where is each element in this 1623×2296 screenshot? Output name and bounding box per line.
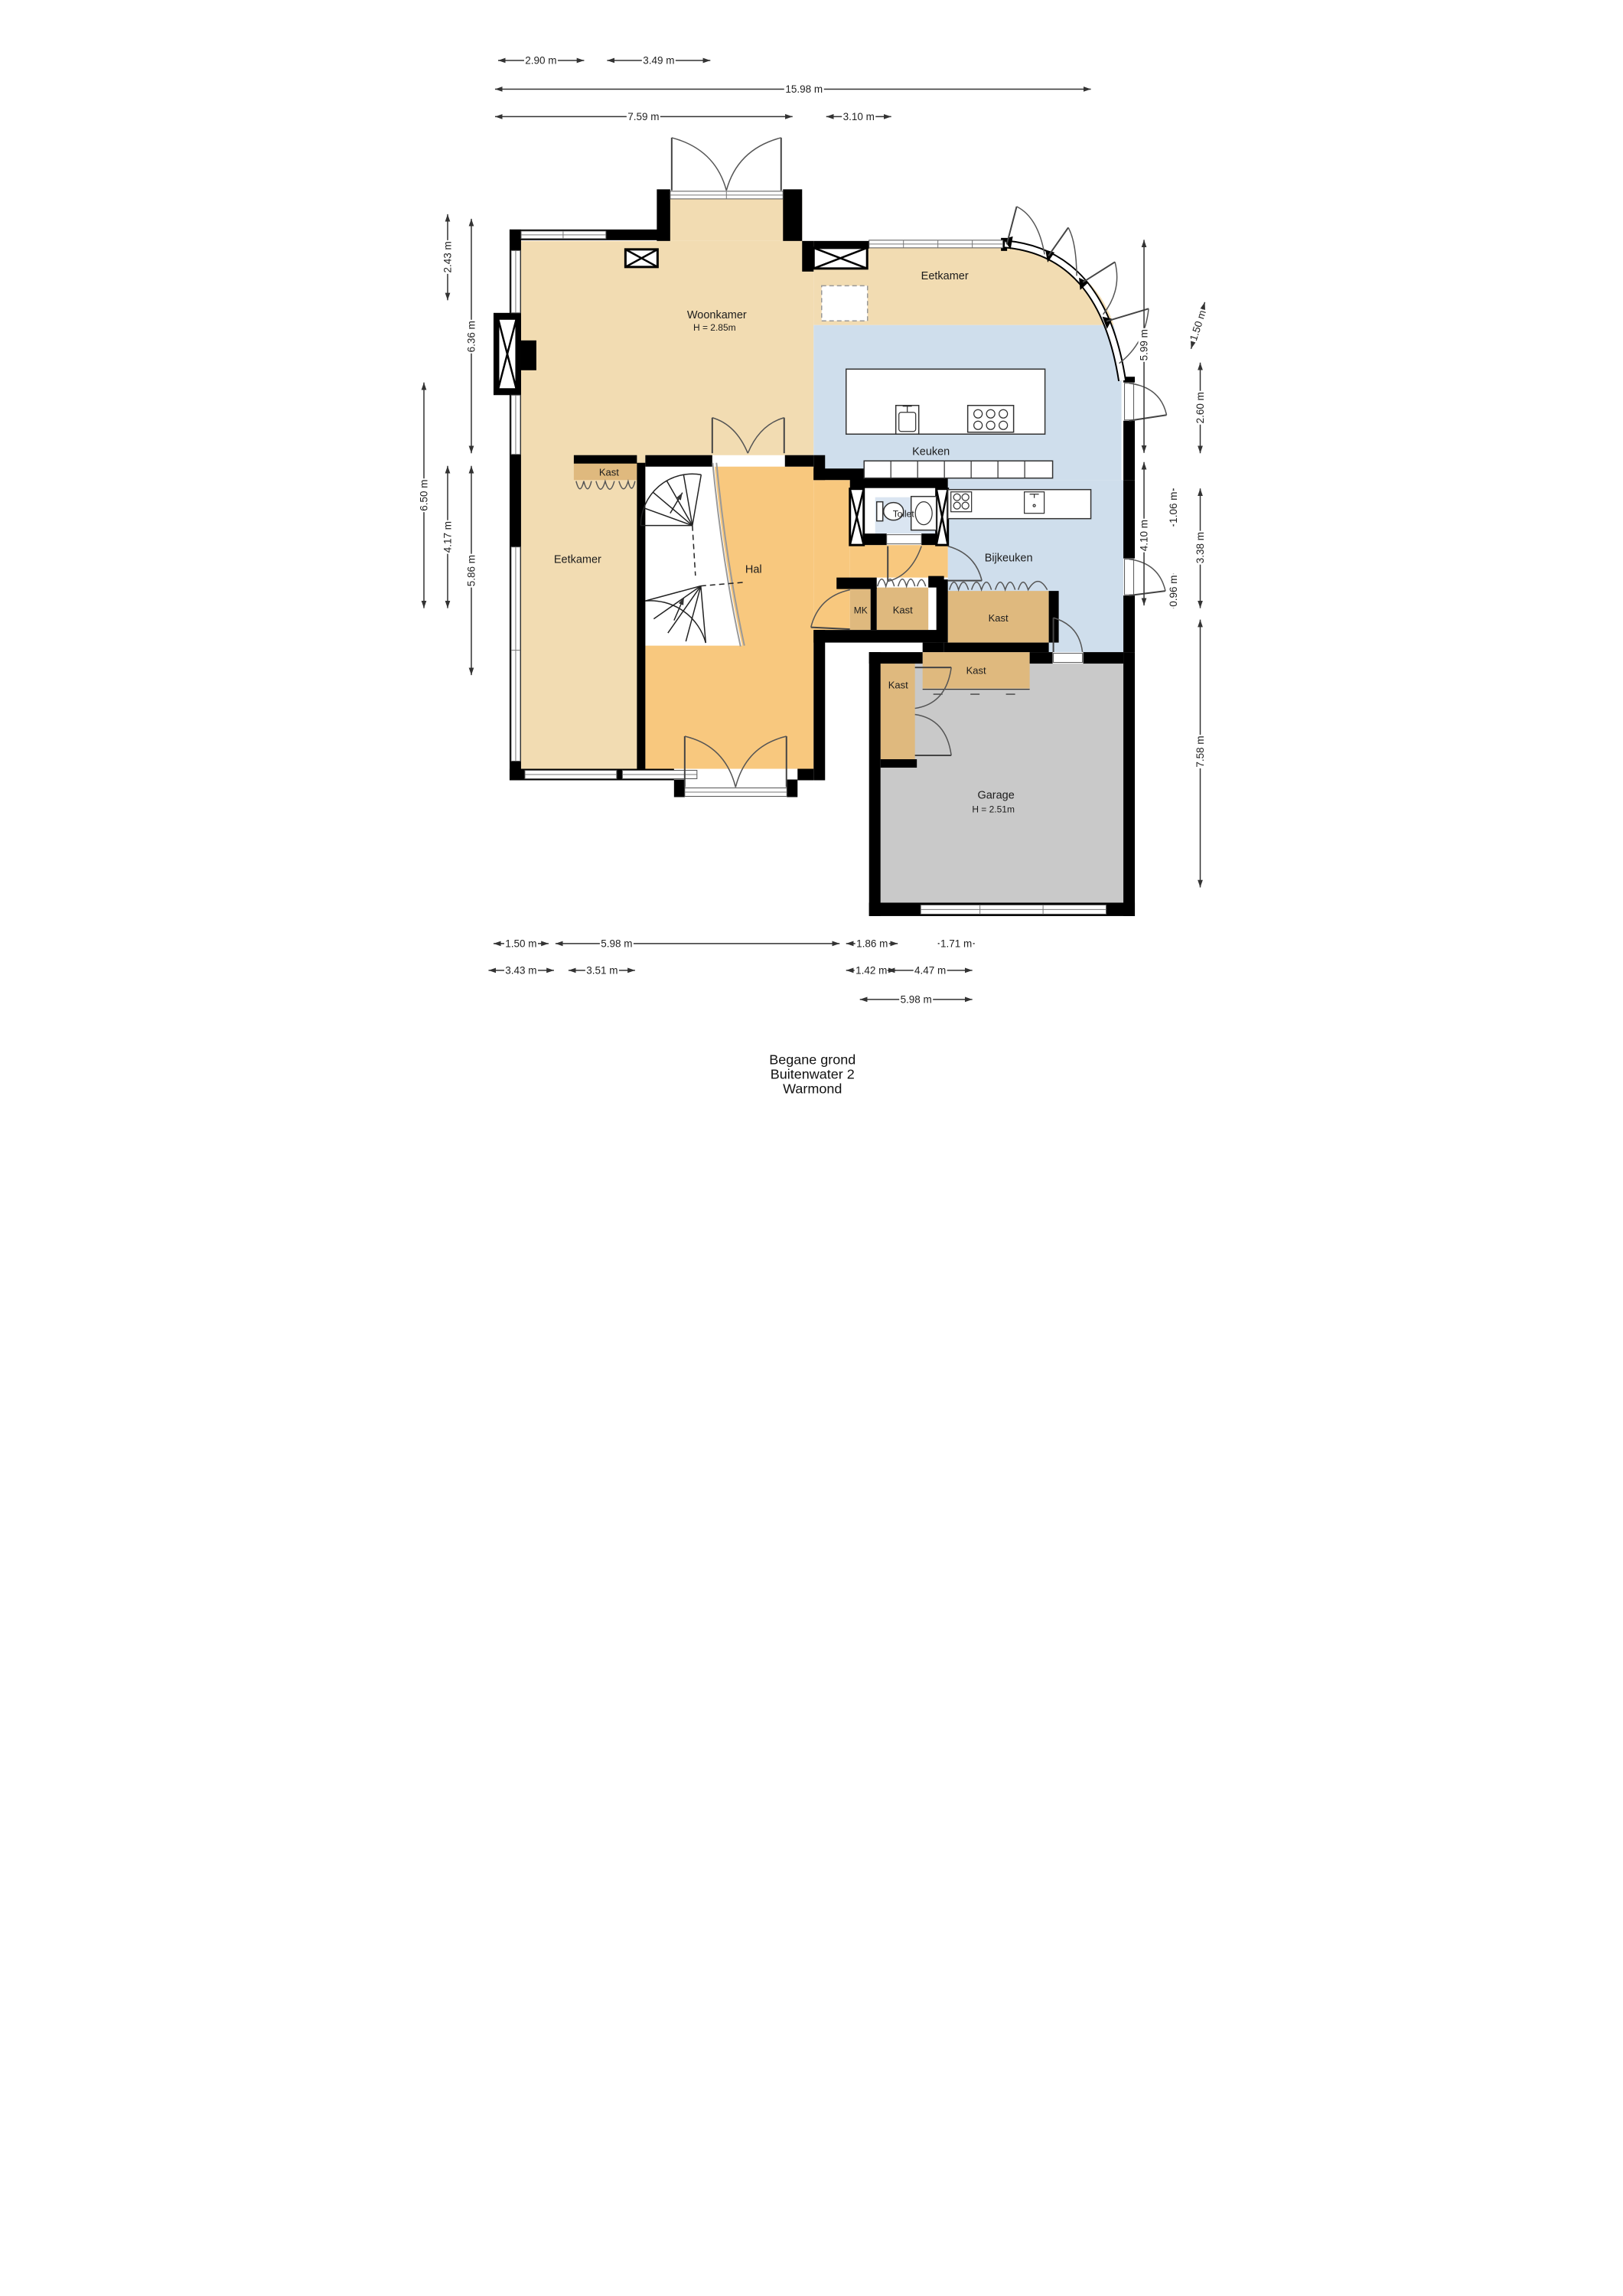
dim-left-0: 2.43 m [442, 214, 453, 300]
svg-text:7.58 m: 7.58 m [1194, 735, 1206, 767]
floor-plan-page: Woonkamer H = 2.85m Eetkamer Keuken Eetk… [406, 0, 1217, 1147]
label-bijkeuken: Bijkeuken [984, 553, 1032, 565]
kitchen-island [846, 369, 1045, 434]
duct-icon [849, 489, 863, 545]
svg-text:1.50 m: 1.50 m [1188, 308, 1208, 342]
svg-text:4.17 m: 4.17 m [442, 521, 453, 553]
dim-right-1: 5.99 m [1138, 240, 1149, 452]
room-entry-bump [658, 197, 801, 240]
svg-text:5.99 m: 5.99 m [1138, 329, 1149, 360]
dim-right-4: 4.10 m [1138, 462, 1149, 605]
caption-street: Buitenwater 2 [770, 1066, 854, 1081]
label-eetkamer-left: Eetkamer [553, 554, 601, 566]
svg-text:1.86 m: 1.86 m [856, 938, 888, 949]
svg-text:2.43 m: 2.43 m [442, 241, 453, 272]
dim-top-3: 7.59 m [494, 111, 792, 122]
svg-text:2.60 m: 2.60 m [1194, 392, 1206, 423]
room-garage [880, 664, 1123, 902]
floor-plan-svg: Woonkamer H = 2.85m Eetkamer Keuken Eetk… [406, 0, 1217, 1147]
svg-text:5.98 m: 5.98 m [900, 993, 931, 1005]
svg-text:1.71 m: 1.71 m [940, 938, 972, 949]
dim-right-2: 2.60 m [1194, 363, 1206, 453]
dim-bottom-0: 1.50 m [493, 938, 548, 949]
dim-top-1: 3.49 m [607, 54, 710, 66]
dim-bottom-3: 1.71 m [937, 938, 974, 949]
label-toilet: Toilet [892, 509, 914, 520]
svg-text:5.98 m: 5.98 m [601, 938, 632, 949]
svg-text:7.59 m: 7.59 m [627, 111, 659, 122]
washbasin-icon [911, 497, 936, 530]
dim-top-2: 15.98 m [494, 83, 1090, 95]
svg-text:2.90 m: 2.90 m [525, 54, 556, 66]
dim-left-1: 6.36 m [465, 219, 477, 453]
dim-right-6: 3.38 m [1194, 488, 1206, 608]
svg-text:4.10 m: 4.10 m [1138, 520, 1149, 551]
duct-icon [813, 248, 867, 269]
hob-icon [967, 406, 1013, 432]
dim-bottom-4: 3.43 m [488, 964, 553, 976]
room-hal-under-toilet [849, 545, 947, 577]
label-garage: Garage [977, 789, 1014, 801]
label-hal: Hal [745, 564, 761, 576]
label-woonkamer-height: H = 2.85m [693, 322, 735, 333]
dim-right-7: 7.58 m [1194, 620, 1206, 888]
dim-right-5: 0.96 m [1168, 574, 1179, 608]
dim-left-4: 5.86 m [465, 466, 477, 675]
dim-left-3: 4.17 m [442, 466, 453, 608]
svg-text:6.50 m: 6.50 m [418, 480, 429, 511]
svg-text:3.38 m: 3.38 m [1194, 532, 1206, 563]
room-hal-strip [813, 480, 849, 630]
room-kast-garage-left [880, 664, 914, 759]
label-eetkamer-top: Eetkamer [921, 270, 968, 282]
dim-bottom-5: 3.51 m [568, 964, 634, 976]
svg-text:3.51 m: 3.51 m [586, 964, 618, 976]
svg-text:1.50 m: 1.50 m [505, 938, 536, 949]
label-keuken: Keuken [912, 446, 950, 458]
utility-counter [947, 490, 1090, 519]
svg-text:1.06 m: 1.06 m [1168, 492, 1179, 523]
svg-text:4.47 m: 4.47 m [914, 964, 946, 976]
dim-top-4: 3.10 m [826, 111, 891, 122]
dim-bottom-1: 5.98 m [555, 938, 839, 949]
label-kast-hal: Kast [892, 605, 912, 616]
label-kast-eetkamer: Kast [598, 467, 618, 478]
dim-right-0: 1.50 m [1187, 302, 1208, 349]
dim-bottom-7: 4.47 m [887, 964, 972, 976]
svg-text:0.96 m: 0.96 m [1168, 576, 1179, 607]
dim-left-2: 6.50 m [418, 383, 429, 608]
duct-icon [625, 249, 657, 267]
caption-floor: Begane grond [769, 1052, 855, 1067]
svg-text:3.10 m: 3.10 m [842, 111, 874, 122]
duct-icon [936, 489, 947, 545]
dim-right-3: 1.06 m [1168, 488, 1179, 526]
label-kast-bijkeuken: Kast [988, 612, 1008, 624]
dim-bottom-2: 1.86 m [846, 938, 897, 949]
chimney-icon [497, 318, 516, 389]
label-garage-height: H = 2.51m [972, 804, 1015, 814]
svg-text:3.49 m: 3.49 m [643, 54, 674, 66]
dim-top-0: 2.90 m [497, 54, 583, 66]
niche-dashed [821, 285, 867, 321]
svg-text:5.86 m: 5.86 m [465, 555, 477, 586]
caption-city: Warmond [783, 1081, 842, 1096]
svg-text:3.43 m: 3.43 m [505, 964, 536, 976]
svg-text:1.42 m: 1.42 m [855, 964, 887, 976]
label-woonkamer: Woonkamer [686, 309, 746, 321]
svg-text:6.36 m: 6.36 m [465, 321, 477, 352]
kitchen-cabinets [864, 461, 1052, 478]
dim-bottom-8: 5.98 m [859, 993, 972, 1005]
label-mk: MK [853, 605, 867, 616]
label-kast-garage-left: Kast [888, 680, 908, 691]
svg-text:15.98 m: 15.98 m [785, 83, 823, 95]
label-kast-garage-top: Kast [966, 665, 986, 677]
caption: Begane grond Buitenwater 2 Warmond [769, 1052, 855, 1096]
